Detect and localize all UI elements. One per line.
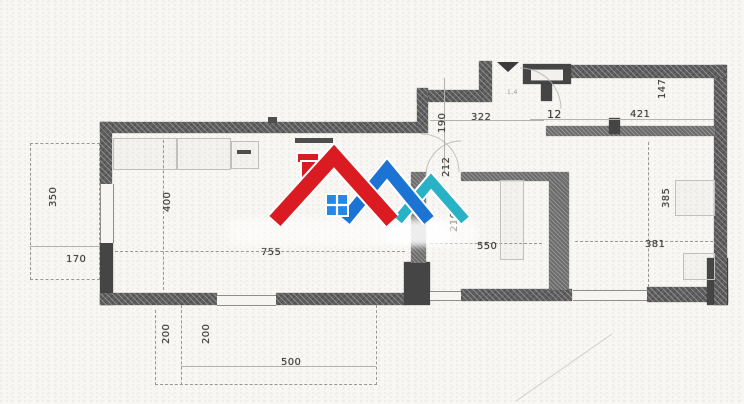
wall bbox=[276, 293, 407, 305]
wall bbox=[549, 172, 569, 290]
wall-mark bbox=[268, 117, 277, 123]
fixture-outline bbox=[683, 253, 715, 280]
chimney-body-outline bbox=[300, 160, 317, 185]
wall bbox=[404, 262, 430, 305]
window-opening bbox=[430, 291, 461, 301]
scan-scratch-line bbox=[516, 334, 612, 401]
dimension-line bbox=[30, 246, 100, 247]
dashed-outline bbox=[575, 241, 713, 243]
fixture-outline bbox=[113, 138, 177, 170]
dashed-outline bbox=[181, 305, 183, 385]
dimension-line bbox=[181, 366, 376, 367]
wall bbox=[609, 118, 620, 134]
dashed-outline bbox=[30, 279, 100, 281]
dashed-outline bbox=[115, 251, 405, 253]
wall bbox=[714, 65, 727, 305]
dashed-outline bbox=[99, 143, 101, 280]
entrance-arrow-icon bbox=[497, 62, 519, 72]
wall bbox=[569, 65, 726, 78]
chimney-cap-icon bbox=[298, 154, 318, 162]
wall-mark bbox=[295, 138, 333, 143]
wall bbox=[546, 126, 715, 136]
red-roof-icon bbox=[275, 156, 392, 221]
wall bbox=[461, 289, 572, 301]
dashed-outline bbox=[30, 143, 32, 280]
dashed-outline bbox=[648, 142, 650, 287]
floorplan-scan: 3221901242114721221675540035017020020050… bbox=[0, 0, 744, 404]
chimney-body-icon bbox=[302, 162, 315, 184]
logo-window-outline bbox=[325, 193, 349, 217]
fixture-outline bbox=[177, 138, 231, 170]
shaft-box bbox=[531, 69, 563, 81]
fixture-outline bbox=[500, 180, 524, 260]
window-opening bbox=[217, 295, 276, 306]
wall bbox=[100, 122, 417, 133]
dashed-outline bbox=[30, 143, 100, 145]
fixture-outline bbox=[231, 141, 259, 169]
window-opening bbox=[100, 184, 114, 243]
dashed-outline bbox=[155, 310, 157, 385]
agency-logo bbox=[275, 152, 465, 221]
wall bbox=[417, 88, 428, 133]
chimney-outline bbox=[296, 152, 320, 163]
fixture-outline bbox=[675, 180, 715, 216]
wall bbox=[541, 84, 552, 101]
wall-mark bbox=[237, 150, 251, 154]
watermark-text-band bbox=[226, 218, 478, 246]
window-opening bbox=[573, 290, 647, 301]
logo-window-icon bbox=[327, 195, 347, 215]
red-roof-outline bbox=[275, 156, 392, 221]
dashed-outline bbox=[376, 305, 378, 385]
wall bbox=[100, 122, 112, 184]
wall bbox=[100, 293, 217, 305]
dashed-outline bbox=[155, 384, 377, 386]
wall bbox=[411, 172, 426, 263]
